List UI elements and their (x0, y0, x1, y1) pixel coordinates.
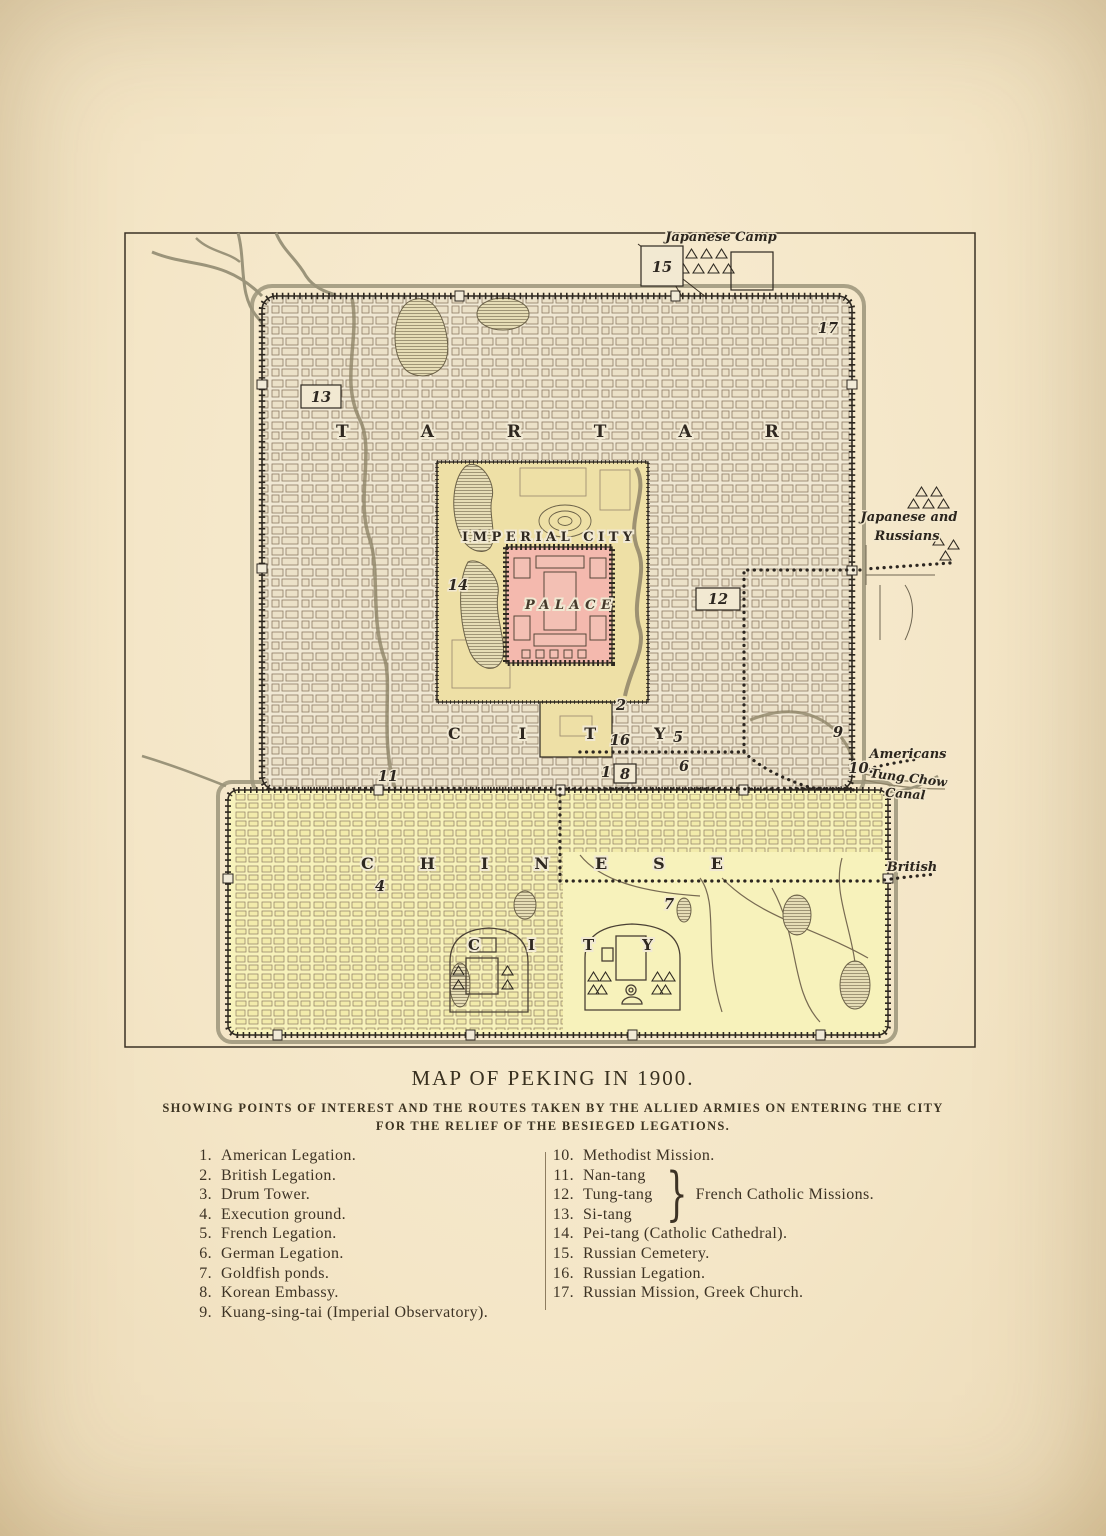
label-tartar: TARTAR (336, 422, 852, 442)
brace-glyph: } (666, 1146, 688, 1245)
legend-item: 11.Nan-tang (544, 1166, 666, 1186)
label-americans: Americans (867, 747, 947, 762)
legend-item: 10.Methodist Mission. (544, 1146, 938, 1166)
label-chinese-city: CITY (468, 936, 701, 954)
marker-2: 2 (615, 697, 626, 714)
marker-8: 8 (614, 764, 636, 783)
label-chinese: CHINESE (361, 854, 769, 873)
brace-label: French Catholic Missions. (696, 1186, 874, 1204)
book-page: TARTAR CITY IMPERIAL CITY PALACE CHINESE… (0, 0, 1106, 1536)
brace-items: 11.Nan-tang 12.Tung-tang 13.Si-tang (544, 1166, 666, 1225)
label-russians: Russians (873, 529, 940, 544)
legend-brace-group: 11.Nan-tang 12.Tung-tang 13.Si-tang } Fr… (544, 1166, 938, 1225)
marker-5: 5 (673, 729, 683, 746)
label-imperial-city: IMPERIAL CITY (462, 530, 637, 545)
subtitle-line-2: FOR THE RELIEF OF THE BESIEGED LEGATIONS… (0, 1117, 1106, 1135)
svg-text:12: 12 (708, 591, 728, 608)
label-canal: Canal (885, 785, 926, 803)
label-japanese-and: Japanese and (858, 510, 958, 525)
legend: 1.American Legation. 2.British Legation.… (140, 1146, 980, 1322)
legend-left-column: 1.American Legation. 2.British Legation.… (140, 1146, 544, 1322)
svg-text:8: 8 (620, 766, 630, 783)
svg-text:15: 15 (652, 259, 672, 276)
legend-item: 3.Drum Tower. (182, 1185, 544, 1205)
marker-1: 1 (601, 764, 611, 781)
marker-14: 14 (448, 577, 468, 594)
svg-text:13: 13 (311, 389, 331, 406)
peking-map-figure: TARTAR CITY IMPERIAL CITY PALACE CHINESE… (0, 0, 1106, 1060)
legend-item: 16.Russian Legation. (544, 1264, 938, 1284)
label-japanese-camp: Japanese Camp (662, 230, 777, 245)
marker-16: 16 (610, 732, 630, 749)
legend-item: 2.British Legation. (182, 1166, 544, 1186)
legend-item: 1.American Legation. (182, 1146, 544, 1166)
legend-item: 15.Russian Cemetery. (544, 1244, 938, 1264)
legend-item: 12.Tung-tang (544, 1185, 666, 1205)
label-palace: PALACE (524, 598, 616, 613)
legend-item: 9.Kuang-sing-tai (Imperial Observatory). (182, 1303, 544, 1323)
legend-item: 5.French Legation. (182, 1224, 544, 1244)
legend-item: 13.Si-tang (544, 1205, 666, 1225)
legend-item: 7.Goldfish ponds. (182, 1264, 544, 1284)
page-title: MAP OF PEKING IN 1900. (0, 1066, 1106, 1091)
marker-6: 6 (679, 758, 689, 775)
legend-item: 14.Pei-tang (Catholic Cathedral). (544, 1224, 938, 1244)
chinese-city (228, 790, 888, 1035)
legend-item: 17.Russian Mission, Greek Church. (544, 1283, 938, 1303)
marker-11: 11 (378, 768, 398, 785)
marker-13: 13 (301, 385, 341, 408)
marker-7: 7 (664, 896, 674, 913)
label-british: British (886, 860, 938, 875)
marker-4: 4 (375, 878, 385, 895)
page-subtitle: SHOWING POINTS OF INTEREST AND THE ROUTE… (0, 1099, 1106, 1135)
marker-17: 17 (818, 320, 838, 337)
legend-right-column: 10.Methodist Mission. 11.Nan-tang 12.Tun… (544, 1146, 938, 1322)
subtitle-line-1: SHOWING POINTS OF INTEREST AND THE ROUTE… (0, 1099, 1106, 1117)
legend-item: 6.German Legation. (182, 1244, 544, 1264)
marker-10: 10. (848, 760, 873, 777)
legend-item: 8.Korean Embassy. (182, 1283, 544, 1303)
route-japanese-russians-outside (865, 563, 950, 569)
marker-9: 9 (833, 724, 843, 741)
marker-15: 15 (641, 246, 683, 286)
legend-item: 4.Execution ground. (182, 1205, 544, 1225)
marker-12: 12 (696, 588, 740, 610)
